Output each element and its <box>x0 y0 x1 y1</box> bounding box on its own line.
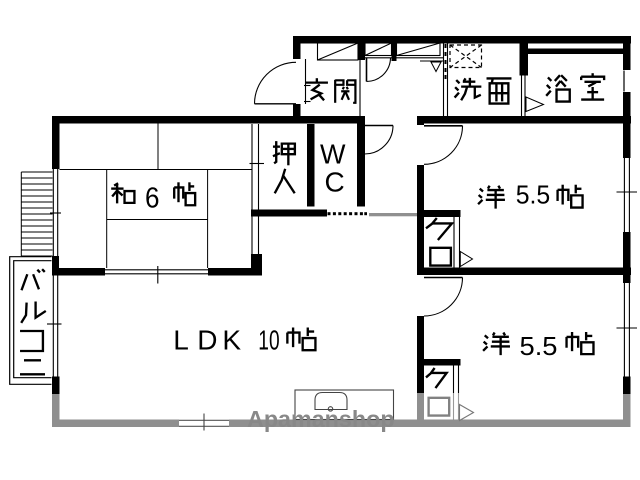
svg-text:5.5: 5.5 <box>520 331 558 361</box>
svg-text:D: D <box>197 325 217 356</box>
svg-text:6: 6 <box>145 182 160 214</box>
svg-text:W: W <box>320 138 346 169</box>
svg-text:C: C <box>325 166 345 197</box>
svg-text:10: 10 <box>258 325 279 356</box>
svg-text:K: K <box>222 325 241 356</box>
svg-text:L: L <box>173 325 189 356</box>
svg-text:5.5: 5.5 <box>516 180 551 210</box>
svg-text:Apamanshop: Apamanshop <box>247 406 395 432</box>
